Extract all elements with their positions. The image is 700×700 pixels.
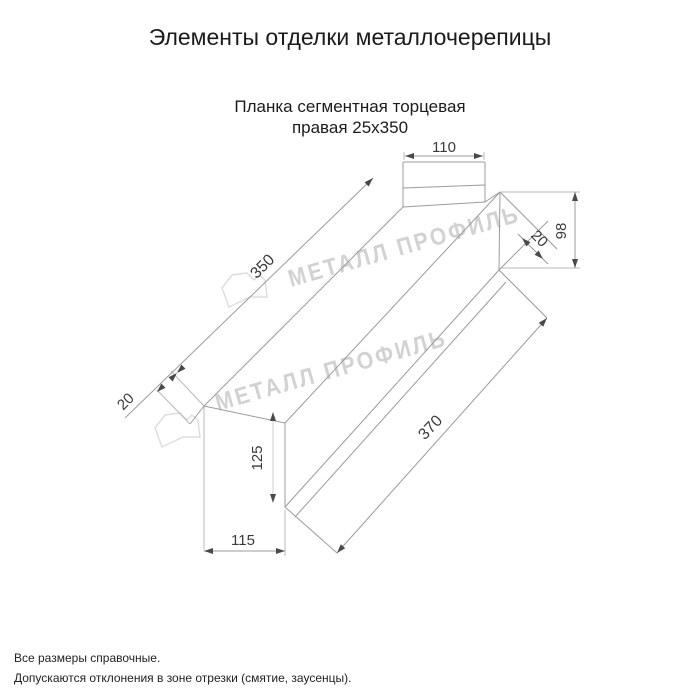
watermark-text: МЕТАЛЛ ПРОФИЛЬ [285,201,523,293]
dim-98-label: 98 [553,223,570,240]
footnote-line2: Допускаются отклонения в зоне отрезки (с… [14,671,351,685]
dim-98: 98 [553,192,578,268]
drawing-subtitle-line2: правая 25x350 [292,118,408,137]
dim-115-label: 115 [231,532,255,549]
technical-drawing-canvas: Элементы отделки металлочерепицы Планка … [0,0,700,700]
footnote-line1: Все размеры справочные. [14,651,160,665]
dim-20-left-label: 20 [114,390,138,414]
dim-125-label: 125 [249,445,266,470]
drawing-subtitle-line1: Планка сегментная торцевая [234,97,465,116]
dim-110-label: 110 [432,139,456,156]
top-end-face [403,152,500,207]
bottom-end-face [204,406,337,556]
metall-profil-logo-icon [155,413,200,447]
page: Элементы отделки металлочерепицы Планка … [0,0,700,700]
dim-110: 110 [405,139,483,159]
dim-125: 125 [249,412,276,503]
watermark-lower: МЕТАЛЛ ПРОФИЛЬ [155,325,450,447]
watermark-text: МЕТАЛЛ ПРОФИЛЬ [212,325,450,417]
dim-115: 115 [204,532,285,554]
page-title: Элементы отделки металлочерепицы [149,24,552,50]
dim-370-label: 370 [415,412,446,443]
